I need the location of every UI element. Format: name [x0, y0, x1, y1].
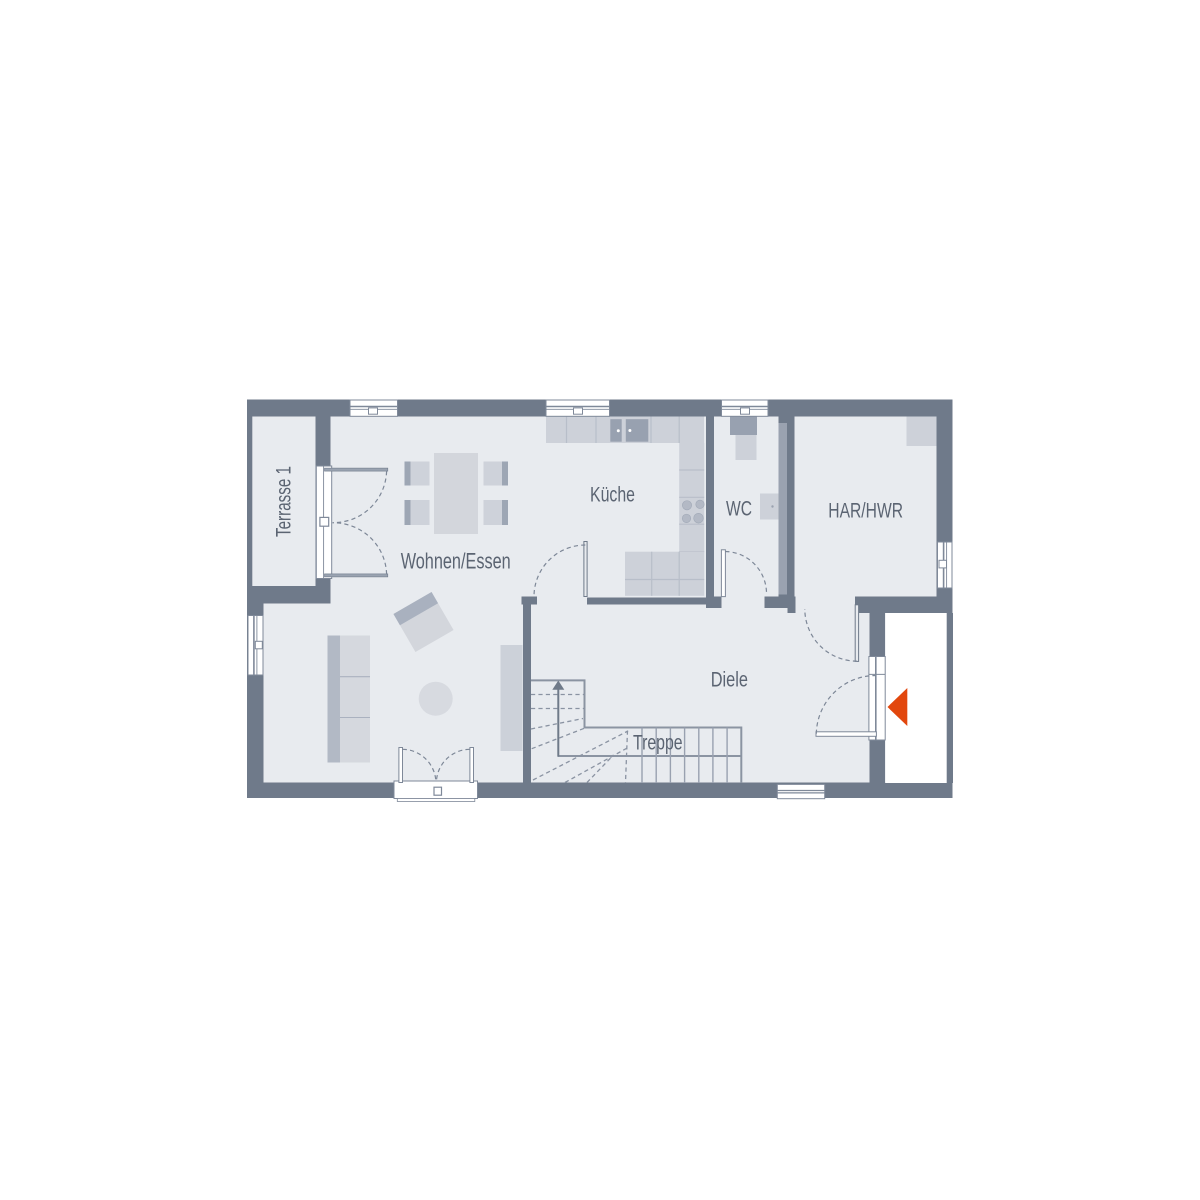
svg-text:Diele: Diele: [711, 668, 748, 692]
svg-text:Wohnen/Essen: Wohnen/Essen: [401, 549, 511, 574]
svg-text:Küche: Küche: [590, 483, 635, 507]
svg-text:Terrasse 1: Terrasse 1: [273, 466, 296, 537]
svg-text:WC: WC: [726, 496, 752, 520]
svg-text:HAR/HWR: HAR/HWR: [828, 499, 903, 523]
svg-text:Treppe: Treppe: [633, 730, 683, 754]
